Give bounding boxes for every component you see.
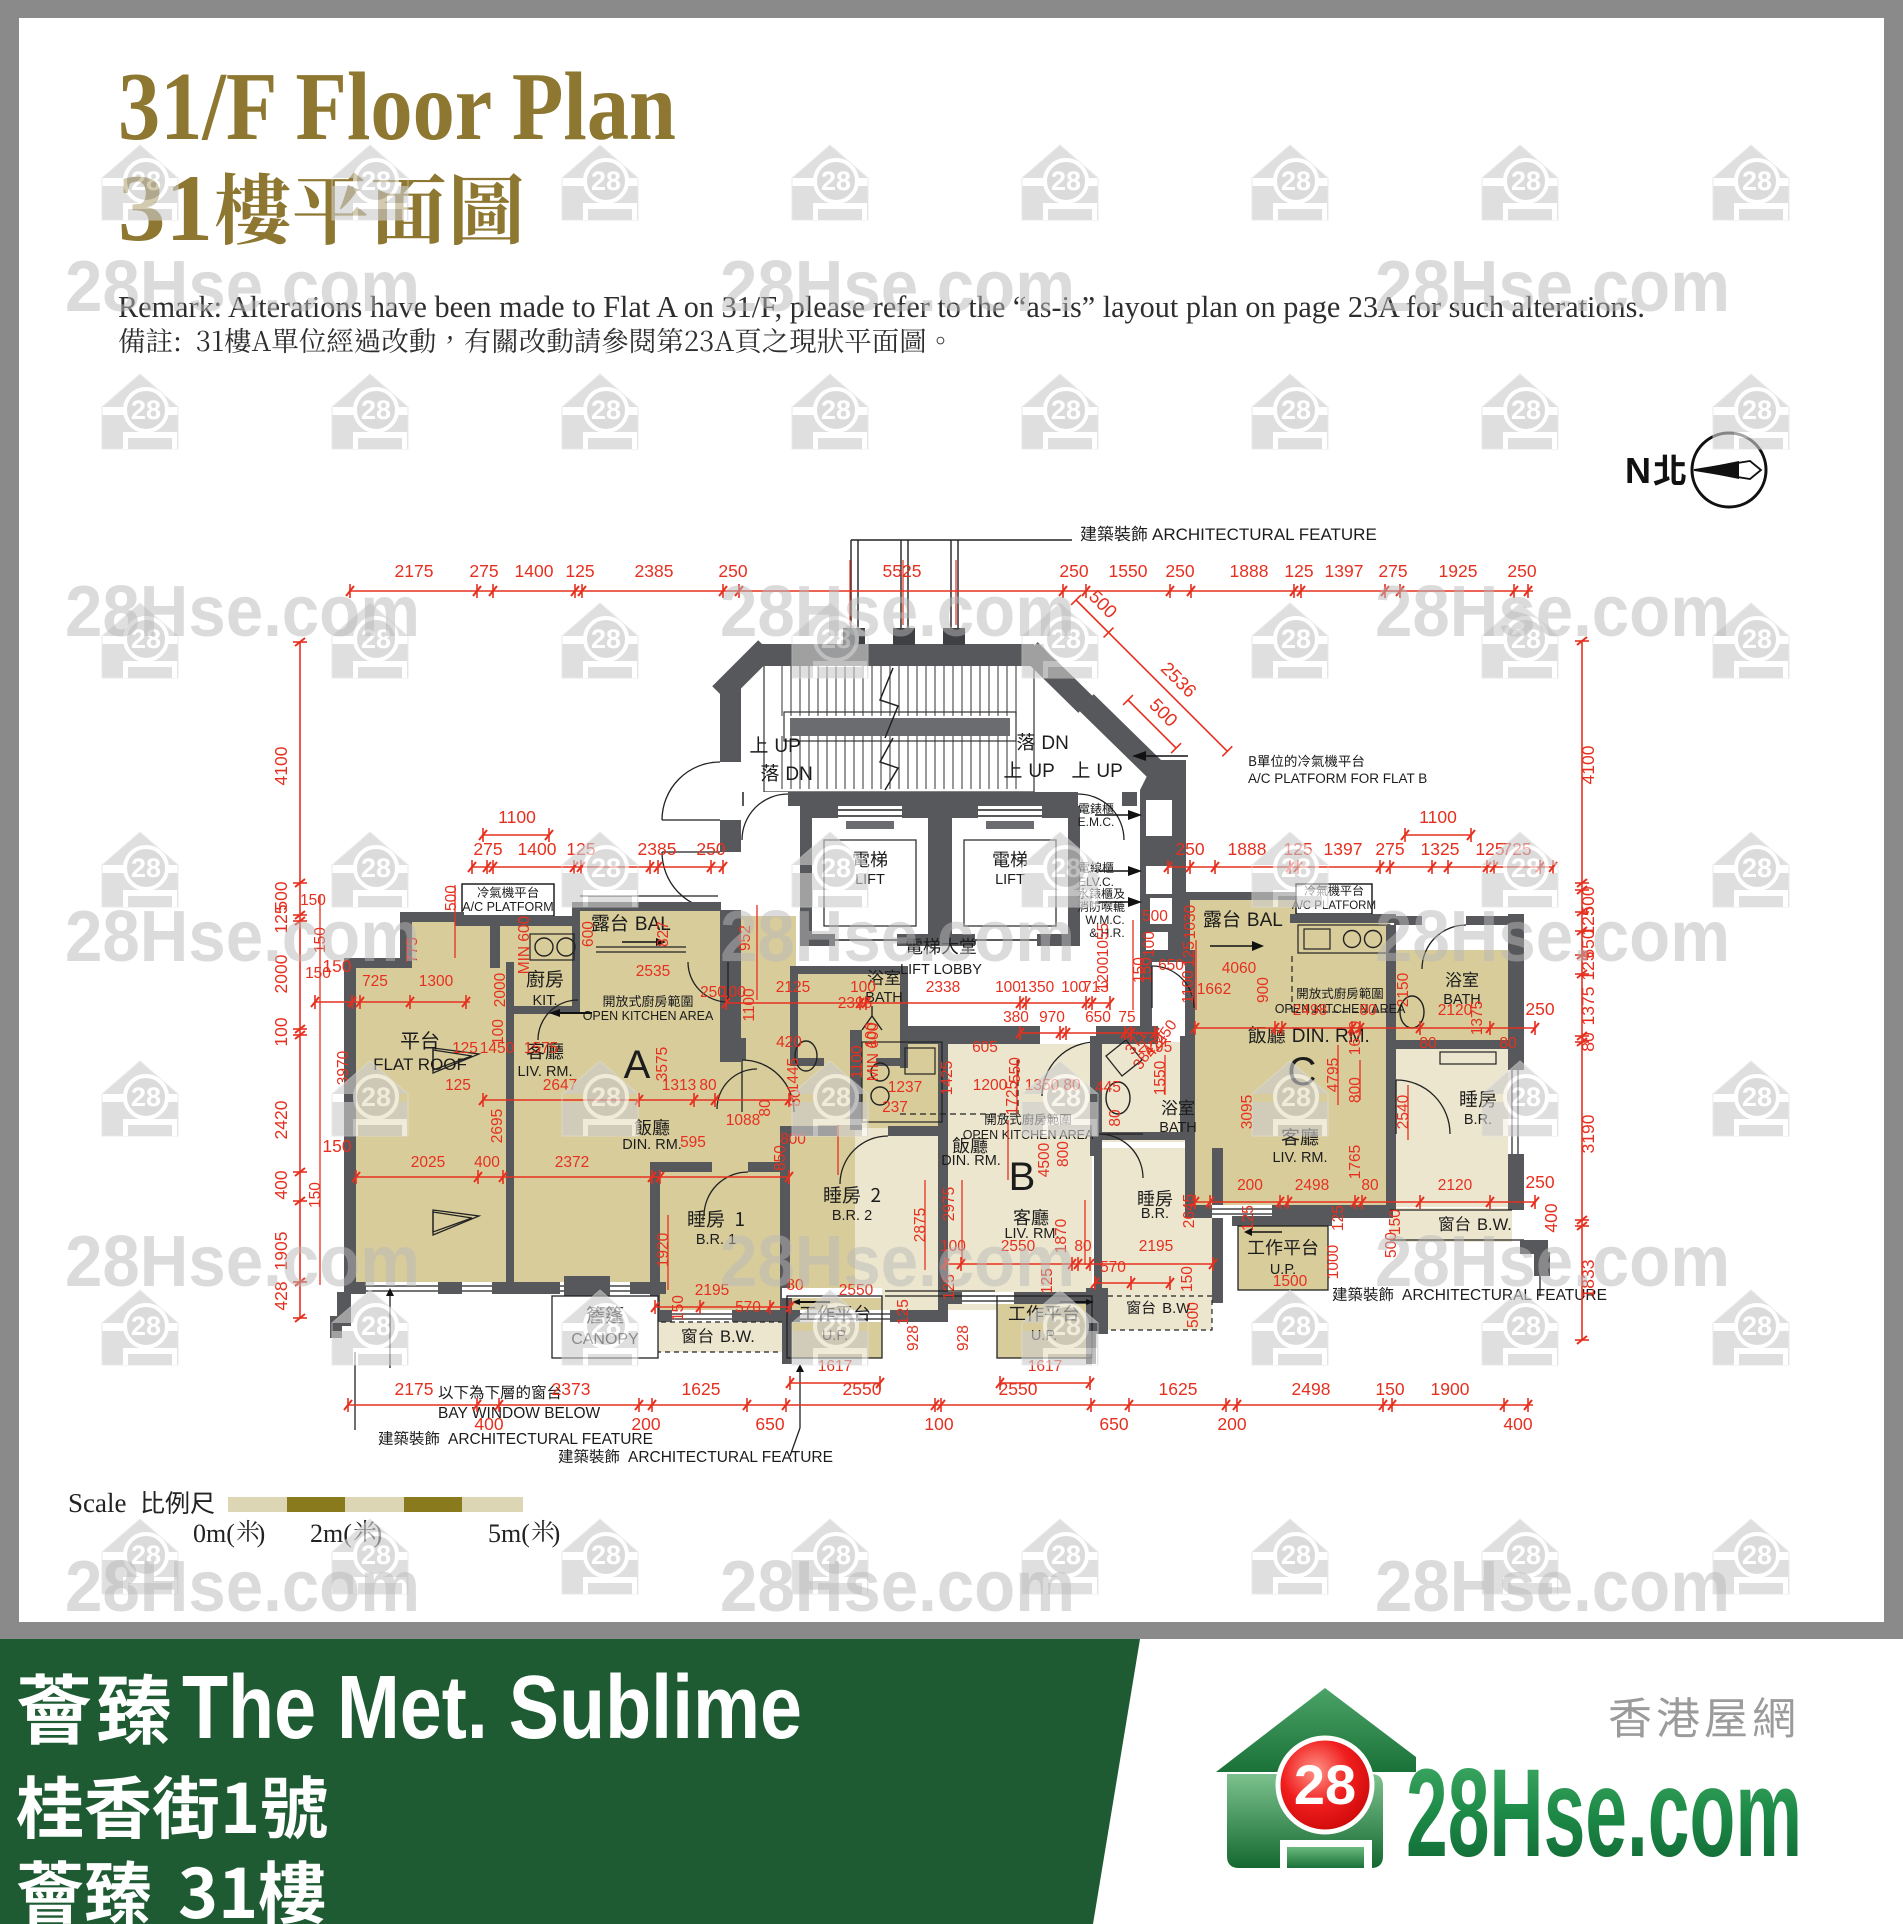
svg-text:125: 125 [1284,561,1313,581]
svg-text:275: 275 [469,561,498,581]
svg-text:2385: 2385 [635,561,674,581]
svg-text:2550: 2550 [843,1379,882,1399]
svg-text:ARCHITECTURAL FEATURE: ARCHITECTURAL FEATURE [628,1449,833,1466]
svg-text:28Hse.com: 28Hse.com [1375,897,1730,977]
svg-text:1237: 1237 [888,1079,922,1096]
svg-text:N: N [1625,450,1651,491]
svg-text:2195: 2195 [1139,1238,1173,1255]
svg-text:28Hse.com: 28Hse.com [65,572,420,652]
svg-text:): ) [552,1519,561,1548]
svg-text:A/C PLATFORM: A/C PLATFORM [462,900,553,914]
svg-text:1030: 1030 [1182,904,1199,939]
svg-text:1765: 1765 [1347,1145,1364,1179]
svg-text:28Hse.com: 28Hse.com [720,572,1075,652]
svg-text:1425: 1425 [939,1061,956,1095]
svg-text:2120: 2120 [1438,1177,1473,1194]
svg-text:100: 100 [1141,931,1158,957]
svg-text:MIN 600: MIN 600 [516,915,533,974]
svg-text:BATH: BATH [1159,1120,1197,1136]
svg-text:2000: 2000 [492,972,509,1007]
svg-text:125: 125 [895,1299,912,1325]
svg-text:4500: 4500 [1036,1142,1053,1177]
svg-text:250: 250 [1175,839,1204,859]
svg-text:800: 800 [1347,1077,1364,1103]
svg-text:2125: 2125 [776,979,810,996]
svg-text:928: 928 [955,1325,972,1351]
svg-text:1888: 1888 [1228,839,1267,859]
svg-text:570: 570 [1100,1259,1126,1276]
svg-text:80: 80 [1359,1002,1377,1019]
svg-text:E.M.C.: E.M.C. [1078,815,1115,829]
svg-text:B.R.: B.R. [1141,1206,1169,1222]
svg-text:4100: 4100 [1578,745,1598,784]
svg-text:3190: 3190 [1578,1114,1598,1153]
svg-text:28Hse.com: 28Hse.com [1375,247,1730,327]
svg-text:250: 250 [1525,999,1554,1019]
svg-text:650: 650 [755,1414,784,1434]
svg-text:125: 125 [1240,1205,1257,1231]
svg-text:1055: 1055 [1095,923,1112,957]
svg-text:BAY WINDOW BELOW: BAY WINDOW BELOW [438,1405,601,1422]
svg-text:500: 500 [1142,908,1168,925]
svg-text:B.W.: B.W. [720,1328,755,1346]
svg-text:1200: 1200 [973,1077,1008,1094]
svg-text:4795: 4795 [1325,1058,1342,1092]
svg-text:1100: 1100 [1419,807,1457,827]
svg-text:2120: 2120 [1438,1002,1473,1019]
svg-text:150: 150 [1138,957,1155,983]
svg-text:FLAT ROOF: FLAT ROOF [373,1055,467,1074]
svg-text:400: 400 [1503,1414,1532,1434]
svg-text:1375: 1375 [1469,1001,1486,1035]
svg-text:650: 650 [1085,1009,1111,1026]
svg-text:100: 100 [850,979,876,996]
svg-text:2695: 2695 [489,1109,506,1143]
svg-text:1900: 1900 [1431,1379,1470,1399]
svg-text:2372: 2372 [555,1154,589,1171]
svg-text:1725: 1725 [1004,1081,1021,1115]
svg-text:850: 850 [772,1145,789,1171]
svg-text:UP: UP [774,736,800,757]
svg-text:LIV. RM.: LIV. RM. [1272,1150,1327,1166]
svg-text:28Hse.com: 28Hse.com [720,897,1075,977]
svg-text:80: 80 [1361,1177,1379,1194]
svg-text:275: 275 [473,839,502,859]
svg-text:150: 150 [307,1182,324,1208]
svg-text:Scale: Scale [68,1488,126,1518]
svg-text:1888: 1888 [1230,561,1269,581]
svg-text:0m(: 0m( [193,1519,235,1548]
svg-text:DIN. RM.: DIN. RM. [622,1137,682,1153]
svg-text:ARCHITECTURAL FEATURE: ARCHITECTURAL FEATURE [1152,525,1377,544]
svg-text:380: 380 [1003,1009,1029,1026]
svg-text:1100: 1100 [1180,970,1197,1004]
svg-text:4100: 4100 [271,746,291,785]
svg-text:4060: 4060 [1222,960,1257,977]
svg-text:28Hse.com: 28Hse.com [65,897,420,977]
svg-text:): ) [257,1519,266,1548]
svg-text:A: A [624,1043,651,1087]
svg-text:28Hse.com: 28Hse.com [720,247,1075,327]
svg-text:400: 400 [474,1154,500,1171]
svg-text:100: 100 [271,1017,291,1046]
svg-text:1625: 1625 [682,1379,721,1399]
svg-text:OPEN KITCHEN AREA: OPEN KITCHEN AREA [583,1009,714,1023]
svg-text:1550: 1550 [1152,1060,1169,1095]
svg-text:2338: 2338 [926,979,960,996]
svg-text:1313: 1313 [662,1077,696,1094]
svg-text:125: 125 [452,1040,478,1057]
svg-text:250: 250 [696,839,725,859]
svg-text:2498: 2498 [1293,1002,1327,1019]
svg-text:2175: 2175 [395,1379,434,1399]
svg-text:31/F Floor Plan: 31/F Floor Plan [118,53,676,160]
svg-text:5m(: 5m( [488,1519,530,1548]
svg-text:1325: 1325 [1421,839,1460,859]
svg-text:2550: 2550 [999,1379,1038,1399]
svg-text:28Hse.com: 28Hse.com [720,1222,1075,1302]
svg-text:125: 125 [565,561,594,581]
svg-text:650: 650 [1099,1414,1128,1434]
svg-text:150: 150 [1375,1379,1404,1399]
svg-text:200: 200 [1237,1177,1263,1194]
svg-text:80: 80 [1074,1238,1092,1255]
svg-text:UP: UP [1096,761,1122,782]
svg-text:250: 250 [1525,1172,1554,1192]
svg-text:DN: DN [785,764,812,785]
svg-text:80: 80 [1419,1035,1437,1052]
svg-text:445: 445 [1095,1079,1121,1096]
svg-text:1550: 1550 [1109,561,1148,581]
svg-text:200: 200 [631,1414,660,1434]
svg-text:1575: 1575 [524,1040,558,1057]
svg-text:125: 125 [1330,1205,1347,1231]
svg-text:550: 550 [1007,1057,1024,1083]
svg-text:28Hse.com: 28Hse.com [65,247,420,327]
svg-text:1200: 1200 [1095,956,1112,991]
svg-text:275: 275 [1375,839,1404,859]
svg-text:125: 125 [445,1077,471,1094]
svg-text:1088: 1088 [726,1112,760,1129]
svg-text:BAL: BAL [1247,910,1283,931]
svg-text:500: 500 [1185,1302,1202,1328]
svg-text:900: 900 [1255,977,1272,1003]
svg-text:100: 100 [490,1019,507,1045]
svg-text:2535: 2535 [636,963,670,980]
svg-text:500: 500 [443,885,460,911]
svg-text:1397: 1397 [1325,561,1364,581]
svg-text:1400: 1400 [515,561,554,581]
svg-text:1662: 1662 [1197,981,1231,998]
svg-text:595: 595 [680,1134,706,1151]
svg-text:400: 400 [474,1414,503,1434]
svg-text:600: 600 [580,921,597,947]
svg-text:28: 28 [1294,1753,1356,1816]
svg-text:1000: 1000 [1325,1244,1342,1279]
svg-text:2385: 2385 [638,839,677,859]
svg-text:970: 970 [1039,1009,1065,1026]
svg-text:200: 200 [1217,1414,1246,1434]
svg-text:80: 80 [699,1077,717,1094]
svg-text:2025: 2025 [411,1154,445,1171]
svg-text:KIT.: KIT. [533,993,558,1009]
svg-text:80: 80 [1107,1109,1124,1127]
svg-text:100: 100 [924,1414,953,1434]
svg-text:80: 80 [1578,1032,1598,1052]
svg-text:150: 150 [1179,1266,1196,1292]
svg-text:2150: 2150 [1395,972,1412,1007]
svg-text:827: 827 [655,921,672,947]
svg-text:2420: 2420 [271,1100,291,1139]
svg-text:B: B [1009,1155,1036,1199]
svg-text:150: 150 [670,1295,687,1321]
svg-text:2540: 2540 [1395,1094,1412,1129]
svg-text:1920: 1920 [655,1232,672,1267]
svg-text:28Hse.com: 28Hse.com [65,1222,420,1302]
svg-text:1100: 1100 [849,1045,866,1079]
svg-text:1500: 1500 [1273,1273,1308,1290]
svg-text:605: 605 [972,1039,998,1056]
svg-text:80: 80 [757,1099,774,1117]
svg-text:75: 75 [1118,1009,1135,1026]
svg-text:DN: DN [1041,733,1068,754]
svg-text:800: 800 [1055,1141,1072,1167]
svg-text:1397: 1397 [1324,839,1363,859]
svg-text:DIN. RM.: DIN. RM. [941,1153,1001,1169]
svg-text:150: 150 [322,1136,351,1156]
svg-text:250: 250 [1165,561,1194,581]
svg-text:28Hse.com: 28Hse.com [1375,1222,1730,1302]
svg-text:A/C PLATFORM FOR FLAT B: A/C PLATFORM FOR FLAT B [1248,771,1427,786]
svg-text:MIN 600: MIN 600 [865,1022,882,1081]
svg-text:100: 100 [720,984,746,1001]
svg-text:1350: 1350 [1020,979,1055,996]
svg-text:28Hse.com: 28Hse.com [720,1547,1075,1627]
svg-text:2975: 2975 [941,1187,958,1221]
svg-text:80: 80 [1499,1035,1517,1052]
svg-text:1375: 1375 [1578,987,1598,1026]
svg-text:1400: 1400 [518,839,557,859]
svg-text:100: 100 [995,979,1021,996]
svg-text:2498: 2498 [1295,1177,1329,1194]
svg-text:928: 928 [905,1325,922,1351]
svg-text:28Hse.com: 28Hse.com [1375,1547,1730,1627]
svg-text:1100: 1100 [498,807,536,827]
svg-text:400: 400 [271,1170,291,1199]
svg-text:LIFT: LIFT [995,872,1025,888]
svg-text:28Hse.com: 28Hse.com [1375,572,1730,652]
svg-text:The Met. Sublime: The Met. Sublime [182,1658,802,1758]
svg-text:420: 420 [776,1034,802,1051]
svg-text:237: 237 [882,1099,908,1116]
svg-text:28Hse.com: 28Hse.com [65,1547,420,1627]
svg-text:2373: 2373 [552,1379,591,1399]
svg-text:1625: 1625 [1159,1379,1198,1399]
svg-text:UP: UP [1028,761,1054,782]
svg-text:1300: 1300 [419,973,454,990]
svg-text:28Hse.com: 28Hse.com [1406,1744,1802,1883]
svg-text:2498: 2498 [1292,1379,1331,1399]
